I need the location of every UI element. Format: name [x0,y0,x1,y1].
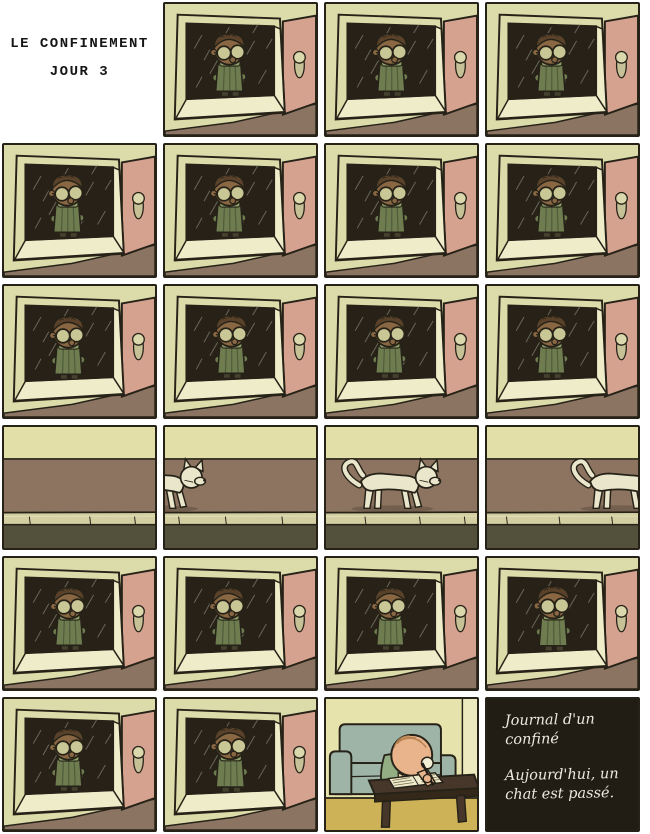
door-handle-knob [455,193,467,205]
panel-10-window [163,284,318,419]
glasses-left-lens [216,600,230,614]
door-handle-knob [616,52,628,64]
nose [392,198,398,204]
curb [4,512,155,525]
glasses-left-lens [539,187,553,201]
panel-21-window [2,697,157,832]
journal-entry-text: Aujourd'hui, un chat est passé. [505,765,631,805]
title-line-2: JOUR 3 [50,64,109,80]
door-handle-knob [294,52,306,64]
nose [230,57,236,63]
journal-text-panel: Journal d'un confiné Aujourd'hui, un cha… [487,699,638,830]
panel-19-window [324,556,479,691]
door-handle-knob [294,334,306,346]
door-handle-knob [294,193,306,205]
nose [69,752,75,758]
nose [230,198,236,204]
nose [392,57,398,63]
panel-14-street [163,425,318,550]
panel-22-window [163,697,318,832]
glasses-left-lens [56,741,70,755]
window-scene [4,286,155,417]
table-right-leg [457,795,467,822]
curb [165,512,316,525]
nose [232,339,238,345]
window-scene [487,558,638,689]
glasses-left-lens [218,740,232,754]
street-scene [326,427,477,548]
panel-18-window [163,556,318,691]
curb [326,512,477,525]
window-scene [165,699,316,830]
panel-17-window [2,556,157,691]
panel-15-street [324,425,479,550]
nose [552,339,558,345]
panel-16-street [485,425,640,550]
glasses-left-lens [379,187,393,201]
panel-20-window [485,556,640,691]
window-scene [4,145,155,276]
door-handle-knob [616,606,628,618]
street-scene [487,427,638,548]
door-handle-knob [133,334,145,346]
nose [552,198,558,204]
floor [326,798,477,830]
road [487,526,638,548]
nose [229,611,235,617]
panel-2-window [163,2,318,137]
cat-back-leg-2 [375,489,382,508]
door-handle-knob [616,334,628,346]
window-scene [4,558,155,689]
window-scene [326,4,477,135]
street-scene [165,427,316,548]
nose [68,198,74,204]
table-left-leg [382,801,391,827]
nose [554,610,560,616]
panel-13-street [2,425,157,550]
writer-hand [423,774,431,782]
door-handle-knob [133,193,145,205]
glasses-left-lens [539,328,553,342]
panel-24-journal: Journal d'un confiné Aujourd'hui, un cha… [485,697,640,832]
panel-7-window [324,143,479,278]
window-scene [165,286,316,417]
glasses-left-lens [217,46,231,60]
cat-nose [438,479,441,482]
nose [231,751,237,757]
road [4,526,155,548]
window-scene [4,699,155,830]
nose [70,611,76,617]
couch-left-arm [330,751,351,794]
door-handle-knob [133,747,145,759]
glasses-left-lens [56,329,70,343]
door-handle-knob [294,747,306,759]
comic-page: LE CONFINEMENT JOUR 3 [0,0,650,833]
glasses-left-lens [539,46,553,60]
window-scene [326,145,477,276]
panel-23-writing [324,697,479,832]
nose [391,611,397,617]
window-scene [165,4,316,135]
street-wall [4,427,155,459]
street-wall [326,427,477,459]
sidewalk [4,459,155,512]
window-scene [487,145,638,276]
panel-9-window [2,284,157,419]
panel-12-window [485,284,640,419]
road [326,526,477,548]
window-scene [487,4,638,135]
window-scene [326,558,477,689]
curb [487,512,638,525]
glasses-left-lens [541,599,555,613]
panel-5-window [2,143,157,278]
glasses-left-lens [217,187,231,201]
glasses-left-lens [57,600,71,614]
street-scene [4,427,155,548]
window-scene [165,145,316,276]
glasses-left-lens [379,46,393,60]
glasses-left-lens [219,328,233,342]
door-handle-knob [455,334,467,346]
door-handle-knob [616,193,628,205]
door-handle-knob [455,606,467,618]
panel-6-window [163,143,318,278]
street-wall [165,427,316,459]
cat-body [590,473,638,492]
glasses-left-lens [55,187,69,201]
comic-grid: LE CONFINEMENT JOUR 3 [0,0,650,834]
glasses-left-lens [378,600,392,614]
nose [69,340,75,346]
writing-scene [326,699,477,830]
title-line-1: LE CONFINEMENT [10,36,149,52]
panel-4-window [485,2,640,137]
nose [390,339,396,345]
cat-back-leg-2 [604,489,611,508]
cat-body [361,473,419,492]
road [165,526,316,548]
glasses-left-lens [377,328,391,342]
window-scene [487,286,638,417]
door-handle-knob [133,606,145,618]
door-handle-knob [294,606,306,618]
comic-title: LE CONFINEMENT JOUR 3 [2,2,157,137]
street-wall [487,427,638,459]
panel-3-window [324,2,479,137]
panel-8-window [485,143,640,278]
window-scene [165,558,316,689]
door-handle-knob [455,52,467,64]
window-scene [326,286,477,417]
panel-11-window [324,284,479,419]
journal-title-text: Journal d'un confiné [505,710,631,750]
cat-nose [203,479,206,482]
nose [552,57,558,63]
